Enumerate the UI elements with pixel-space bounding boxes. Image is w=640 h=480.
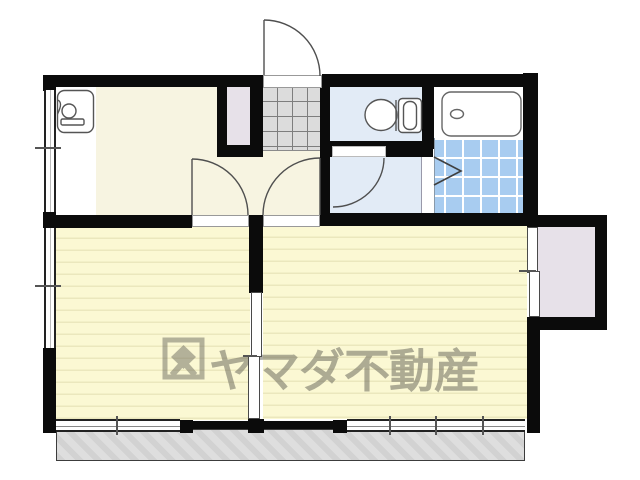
toilet-room-floor — [330, 87, 422, 141]
window-tick — [389, 416, 391, 435]
fusuma-panel-lower — [248, 356, 260, 419]
bath-door-strip — [422, 157, 434, 213]
bathroom-tile-floor — [434, 138, 524, 213]
window-left-upper — [44, 90, 56, 212]
closet-panel-tick — [519, 270, 536, 272]
wall-room-right — [527, 330, 540, 433]
entrance-door-swing-icon — [264, 20, 320, 76]
wall-kitchen-bottom — [43, 215, 192, 228]
wall-toilet-right — [422, 87, 434, 149]
wall-left-bottom — [43, 348, 56, 433]
wall-bottom-stub-right — [333, 420, 347, 433]
window-tick — [35, 147, 61, 149]
wall-partition-stub-top — [249, 215, 263, 293]
wall-bottom-stub-left — [180, 420, 193, 433]
wall-closet-bottom — [527, 317, 607, 330]
balcony — [56, 429, 525, 461]
window-tick — [116, 416, 118, 435]
entrance-door-opening — [263, 75, 322, 88]
bathroom-upper-floor — [434, 87, 523, 138]
floorplan-canvas: ヤマダ不動産 — [0, 0, 640, 480]
wall-bath-right — [523, 73, 538, 215]
wall-left-corner — [43, 75, 56, 91]
closet-sliding-panel-upper — [527, 227, 538, 273]
window-balcony-left — [56, 419, 180, 432]
washroom-floor — [330, 157, 422, 213]
washroom-door-opening — [332, 146, 386, 157]
kitchen-counter-strip — [56, 87, 96, 215]
window-left-lower — [44, 228, 56, 348]
room-right-door-opening — [263, 215, 320, 227]
closet-sliding-panel-lower — [529, 271, 540, 317]
wall-closet-right — [595, 215, 607, 330]
right-closet-floor — [538, 227, 595, 317]
window-tick — [435, 416, 437, 435]
wall-top-right — [322, 74, 538, 87]
kitchen-closet-floor — [227, 87, 250, 145]
window-tick — [482, 416, 484, 435]
window-tick — [35, 285, 61, 287]
wall-bottom-middle — [180, 421, 347, 429]
fusuma-panel-upper — [251, 292, 262, 357]
genkan-tile-floor — [263, 87, 320, 151]
wall-rooms-top — [320, 213, 538, 226]
room-left-door-opening — [192, 215, 249, 227]
fusuma-tick — [243, 355, 257, 357]
